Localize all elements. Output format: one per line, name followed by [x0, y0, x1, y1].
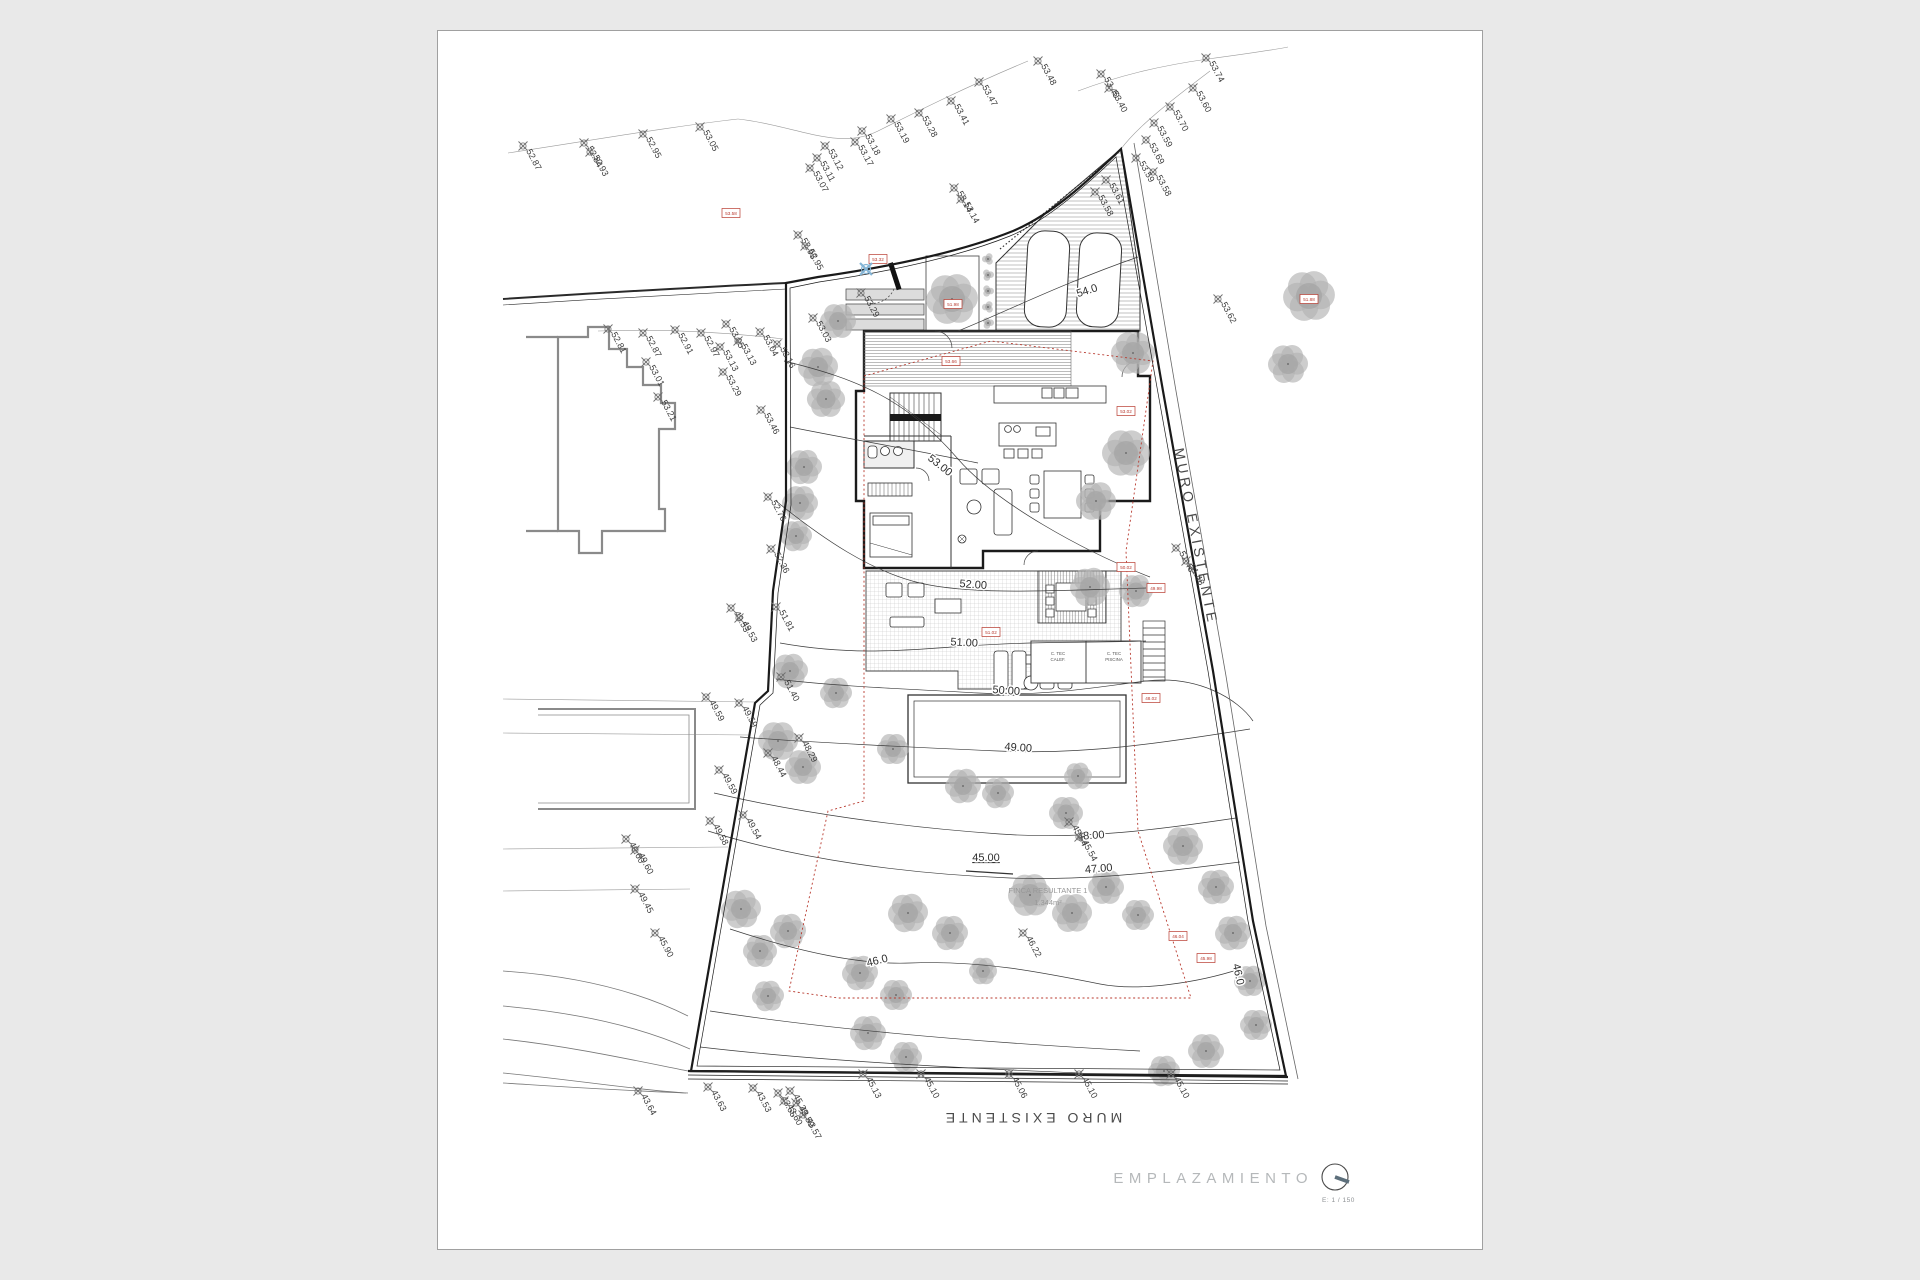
elevation-tag-value: 46.04 [1172, 934, 1184, 939]
survey-elevation-label: 52.97 [702, 334, 721, 359]
survey-point: 52.87 [519, 142, 544, 172]
survey-elevation-label: 43.57 [804, 1116, 823, 1141]
elevation-tag-value: 45.98 [1200, 956, 1212, 961]
tree [880, 980, 912, 1010]
elevation-tag-value: 51.88 [1303, 297, 1315, 302]
elevation-tag: 53.66 [942, 357, 960, 366]
elevation-tag-value: 53.32 [872, 257, 884, 262]
survey-point: 45.13 [859, 1070, 884, 1100]
tree [1188, 1034, 1224, 1068]
tree [932, 916, 968, 950]
survey-point: 53.62 [1214, 295, 1239, 325]
survey-elevation-label: 45.90 [656, 934, 675, 959]
drawing-sheet: 54.053.0052.0051.0050.0049.0048.0047.004… [437, 30, 1483, 1250]
utility-marker-icon [860, 263, 872, 275]
survey-point: 52.81 [604, 325, 629, 355]
tree [850, 1016, 886, 1050]
survey-elevation-label: 49.45 [636, 890, 655, 915]
survey-elevation-label: 53.60 [1194, 89, 1213, 114]
parcel-label-line1: FINCA RESULTANTE 1 [1009, 886, 1088, 895]
tree [798, 348, 838, 386]
tech-room-label: PISCINA [1105, 657, 1123, 662]
contour-label: 52.00 [959, 578, 987, 592]
survey-elevation-label: 43.63 [709, 1088, 728, 1113]
neighbour-building-upper [526, 327, 675, 553]
survey-point: 51.81 [772, 603, 797, 633]
tree [983, 285, 994, 296]
survey-elevation-label: 53.58 [1154, 173, 1173, 198]
survey-elevation-label: 43.53 [754, 1089, 773, 1114]
elevation-tag-value: 53.02 [1120, 409, 1132, 414]
survey-elevation-label: 45.13 [864, 1075, 883, 1100]
tree [888, 894, 928, 932]
elevation-tag: 48.02 [1142, 694, 1160, 703]
elevation-tag: 51.98 [944, 300, 962, 309]
tree [1076, 482, 1116, 520]
survey-point: 49.54 [739, 811, 764, 841]
tree [752, 981, 784, 1012]
tree [877, 734, 909, 764]
survey-elevation-label: 49.59 [740, 704, 759, 729]
spot-elevation-label: 45.00 [972, 852, 1000, 864]
tech-room-label: C. TEC [1107, 651, 1121, 656]
survey-elevation-label: 45.10 [1172, 1075, 1191, 1100]
elevation-tag-value: 49.98 [1150, 586, 1162, 591]
survey-elevation-label: 49.58 [711, 822, 730, 847]
survey-elevation-label: 53.28 [920, 114, 939, 139]
site-plan-svg: 54.053.0052.0051.0050.0049.0048.0047.004… [438, 31, 1484, 1251]
contour-label: 47.00 [1085, 862, 1113, 876]
elevation-tag: 53.58 [722, 209, 740, 218]
garden-stair [1143, 621, 1165, 681]
survey-elevation-label: 52.81 [609, 330, 628, 355]
survey-elevation-label: 52.95 [644, 135, 663, 160]
gate-post [888, 262, 901, 290]
muro-existente-right-label: MURO EXISTENTE [1171, 447, 1221, 627]
roof-deck-hatch [864, 331, 1071, 386]
survey-point: 53.41 [947, 97, 972, 127]
survey-elevation-label: 53.47 [980, 83, 999, 108]
survey-elevation-label: 53.48 [1039, 62, 1058, 87]
survey-point: 52.91 [671, 326, 696, 356]
elevation-tag-value: 51.02 [985, 630, 997, 635]
bedroom [868, 483, 912, 557]
survey-elevation-label: 45.10 [922, 1075, 941, 1100]
survey-point: 52.95 [639, 130, 664, 160]
survey-point: 43.63 [704, 1083, 729, 1113]
survey-point: 53.05 [696, 123, 721, 153]
survey-elevation-label: 53.29 [724, 373, 743, 398]
tree [1102, 430, 1150, 475]
survey-elevation-label: 53.70 [1171, 108, 1190, 133]
contour-label: 46.0 [865, 953, 889, 970]
survey-point: 53.48 [1034, 57, 1059, 87]
elevation-tag: 45.98 [1197, 954, 1215, 963]
tree [820, 678, 852, 708]
elevation-tag: 51.02 [982, 628, 1000, 637]
survey-elevation-label: 53.41 [952, 102, 971, 127]
contour-label: 51.00 [950, 636, 978, 649]
tree [743, 935, 777, 967]
elevation-tag: 49.98 [1147, 584, 1165, 593]
pool [908, 695, 1126, 783]
survey-elevation-label: 45.06 [1010, 1075, 1029, 1100]
survey-elevation-label: 53.74 [1207, 59, 1226, 84]
elevation-tag: 51.88 [1300, 295, 1318, 304]
contour-label: 49.00 [1004, 741, 1032, 755]
survey-elevation-label: 51.81 [777, 608, 796, 633]
tree [1215, 916, 1251, 951]
tech-room-label: CALEF. [1051, 657, 1066, 662]
survey-point: 53.70 [1166, 103, 1191, 133]
top-wall [503, 283, 786, 305]
elevation-tag: 50.02 [1117, 563, 1135, 572]
contour-label: 46.0 [1230, 963, 1246, 986]
drawing-title: EMPLAZAMIENTO [1113, 1170, 1313, 1187]
road-curves [503, 971, 690, 1093]
survey-elevation-label: 53.16 [778, 345, 797, 370]
survey-point: 53.47 [975, 78, 1000, 108]
entrance-steps [846, 289, 924, 330]
survey-elevation-label: 49.54 [744, 816, 763, 841]
tree [969, 958, 997, 984]
tree [1198, 870, 1234, 905]
technical-rooms [1031, 641, 1141, 683]
survey-elevation-label: 53.69 [1147, 141, 1166, 166]
survey-point: 53.19 [887, 115, 912, 145]
neighbour-building-lower [538, 709, 695, 809]
tree [1122, 900, 1154, 930]
title-block: EMPLAZAMIENTO E: 1 / 150 [1113, 1164, 1354, 1204]
elevation-tag: 53.02 [1117, 407, 1135, 416]
tree [982, 301, 993, 312]
survey-point: 49.45 [631, 885, 656, 915]
survey-elevation-label: 52.87 [644, 334, 663, 359]
bottom-wall [688, 1071, 1288, 1084]
survey-elevation-label: 53.13 [739, 342, 758, 367]
survey-point: 52.87 [639, 329, 664, 359]
survey-point: 53.01 [642, 358, 667, 388]
elevation-tag-value: 51.98 [947, 302, 959, 307]
survey-point: 53.60 [1189, 84, 1214, 114]
contour-label: 50.00 [992, 684, 1020, 698]
survey-point: 43.53 [749, 1084, 774, 1114]
tree [1240, 1010, 1272, 1040]
survey-elevation-label: 53.05 [701, 128, 720, 153]
survey-point: 53.28 [915, 109, 940, 139]
scale-label: E: 1 / 150 [1322, 1197, 1355, 1204]
north-logo-icon [1322, 1164, 1349, 1190]
tree [982, 253, 993, 264]
elevation-tag-value: 48.02 [1145, 696, 1157, 701]
survey-elevation-label: 53.46 [762, 411, 781, 436]
house-plan [846, 149, 1165, 874]
survey-point: 49.59 [715, 766, 740, 796]
tree [1008, 874, 1052, 916]
elevation-tag-value: 53.58 [725, 211, 737, 216]
garden-step [966, 871, 1013, 874]
survey-elevation-label: 53.04 [761, 333, 780, 358]
tree [1268, 345, 1308, 383]
tree [983, 318, 994, 329]
survey-elevation-label: 45.54 [1080, 838, 1099, 863]
tech-room-label: C. TEC [1051, 651, 1065, 656]
survey-point: 49.59 [702, 693, 727, 723]
survey-point: 45.90 [651, 929, 676, 959]
elevation-tag-value: 53.66 [945, 359, 957, 364]
elevation-tag: 46.04 [1169, 932, 1187, 941]
elevation-tag: 53.32 [869, 255, 887, 264]
survey-elevation-label: 46.22 [1024, 934, 1043, 959]
tree [786, 450, 822, 484]
survey-elevation-label: 53.62 [1219, 300, 1238, 325]
survey-point: 53.04 [756, 328, 781, 358]
tree [807, 381, 845, 417]
tree [983, 270, 994, 281]
survey-point: 53.29 [719, 368, 744, 398]
survey-elevation-label: 43.64 [639, 1092, 658, 1117]
survey-elevation-label: 52.87 [524, 147, 543, 172]
survey-point: 46.22 [1019, 929, 1044, 959]
survey-point: 53.46 [757, 406, 782, 436]
survey-elevation-label: 53.19 [892, 120, 911, 145]
muro-existente-bottom-label: MURO EXISTENTE [942, 1110, 1122, 1126]
parcel-label-line2: 1.344m² [1034, 898, 1062, 907]
survey-elevation-label: 52.91 [676, 331, 695, 356]
survey-elevation-label: 49.59 [707, 698, 726, 723]
elevation-tag-value: 50.02 [1120, 565, 1132, 570]
survey-elevation-label: 53.40 [1110, 89, 1129, 114]
tree [1163, 827, 1203, 865]
survey-elevation-label: 49.59 [720, 771, 739, 796]
